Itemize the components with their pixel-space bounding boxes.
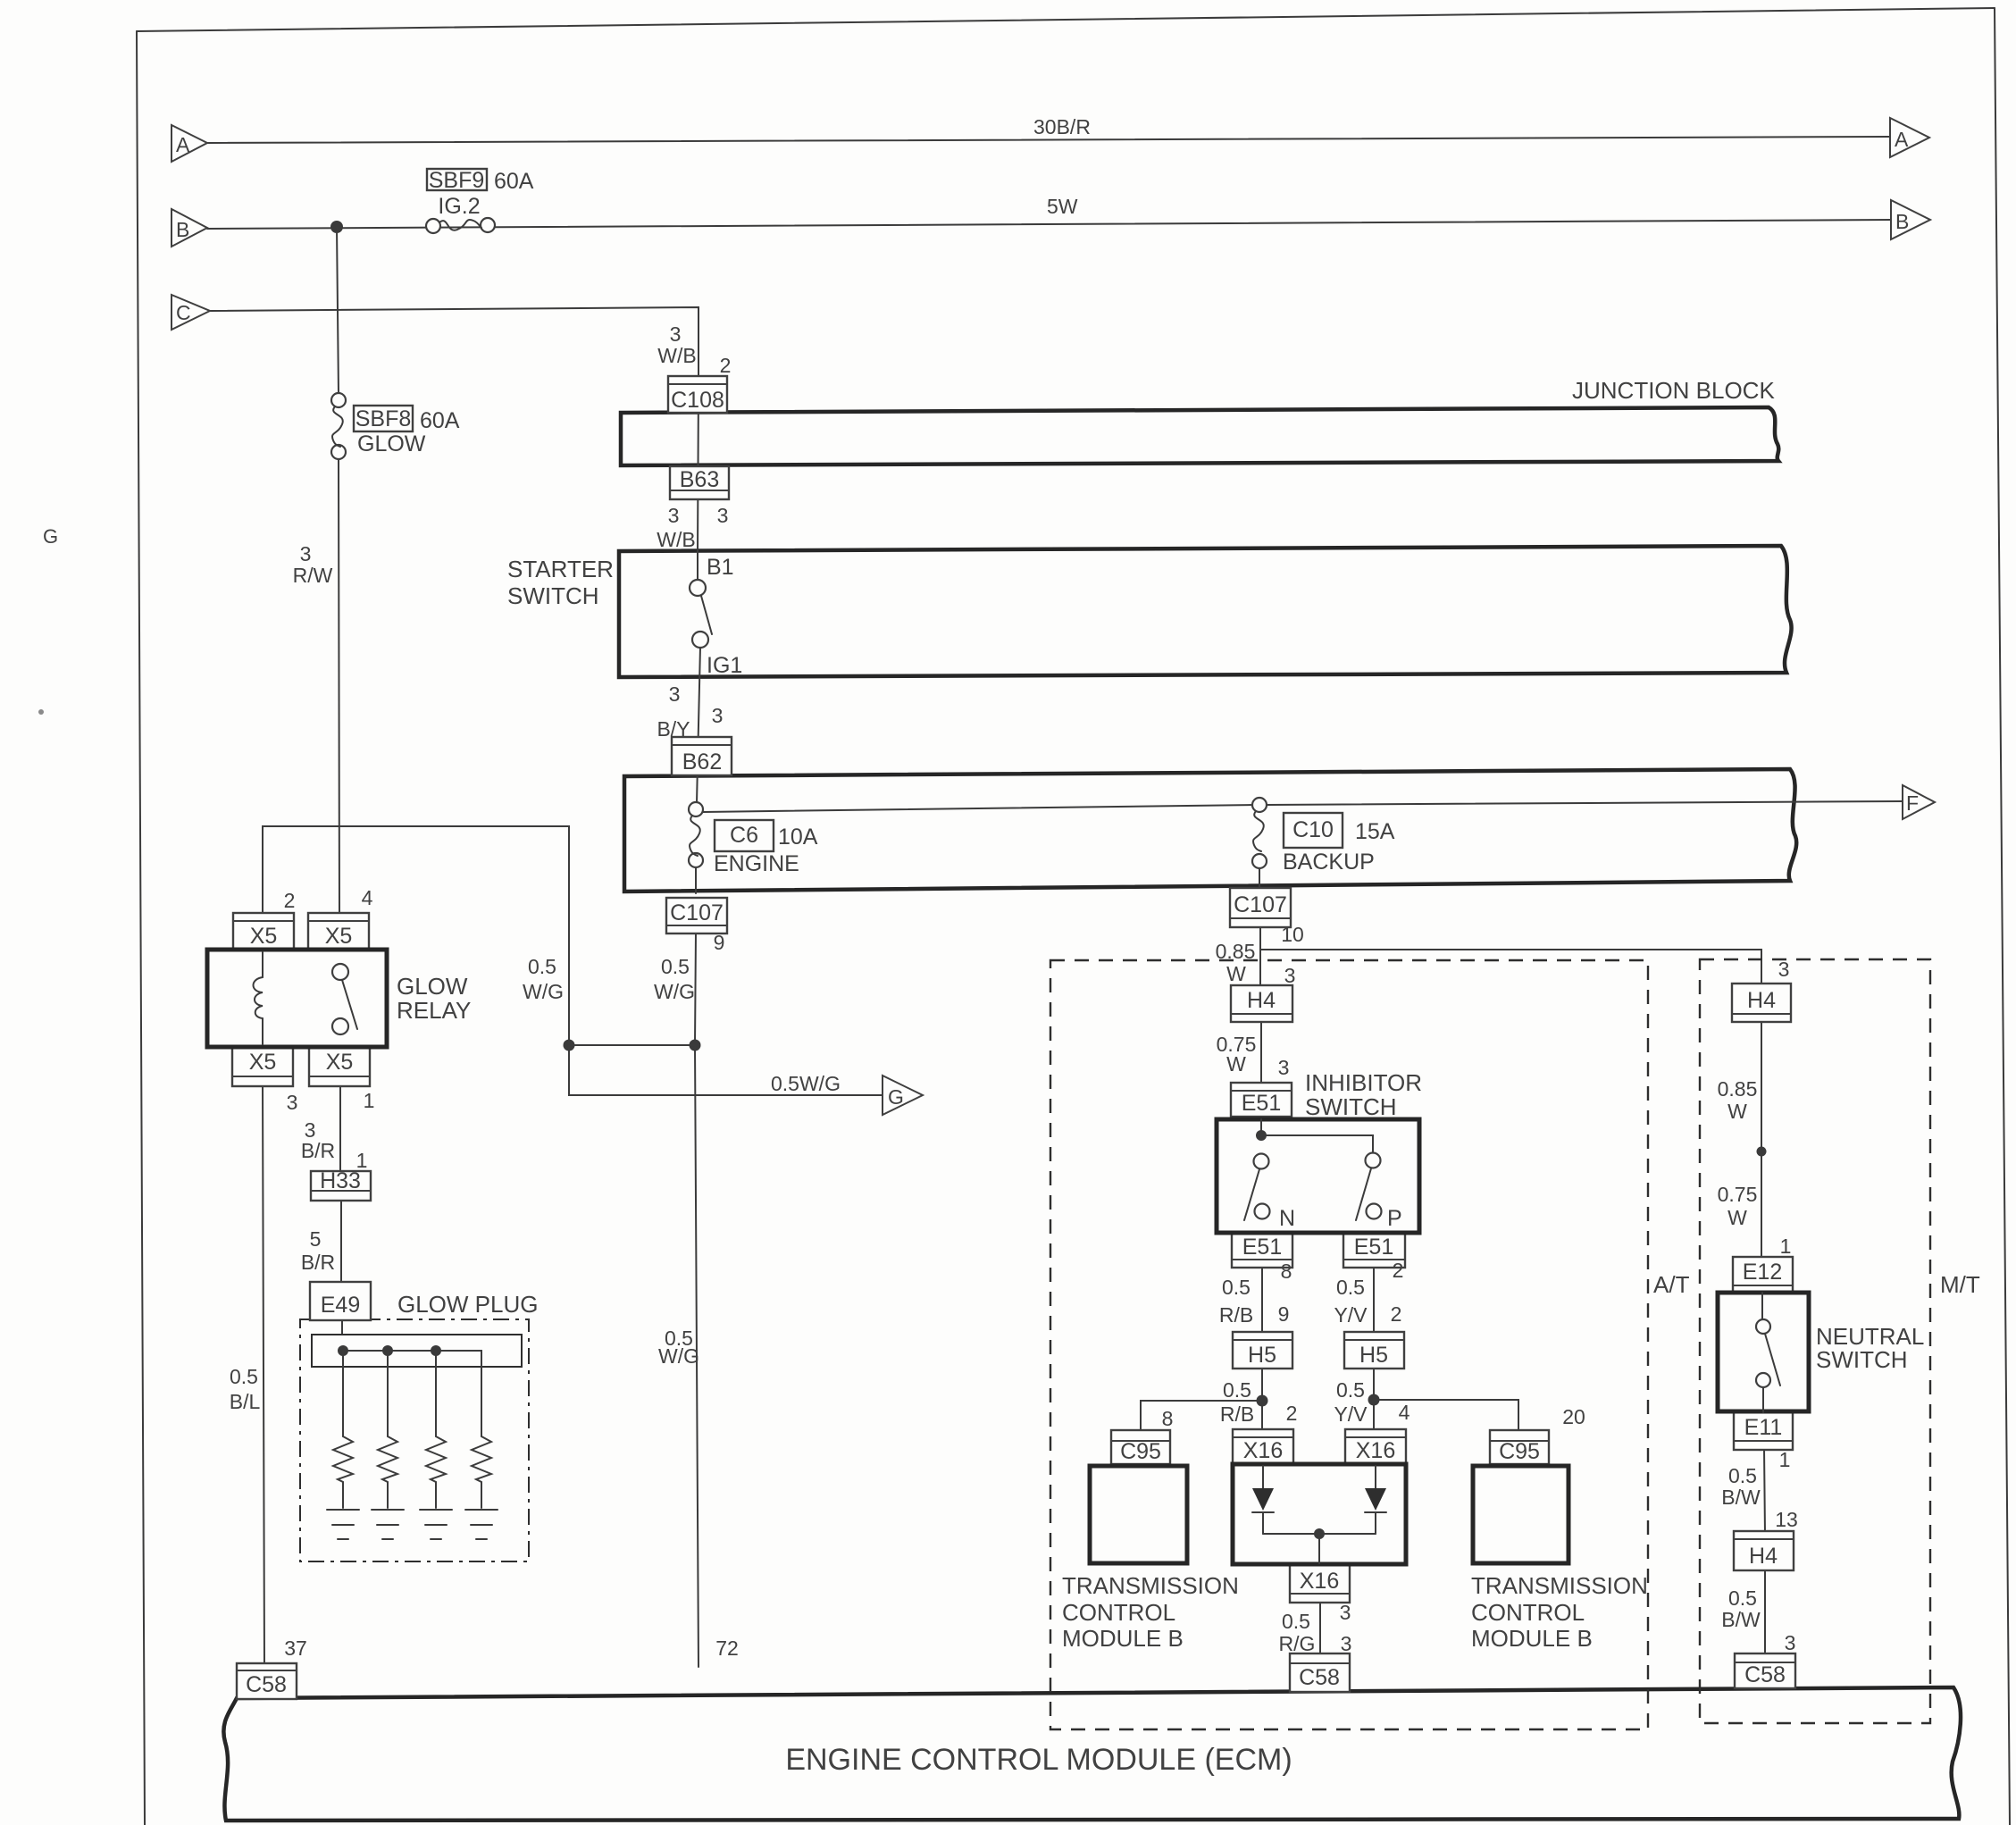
svg-text:W: W <box>1727 1100 1747 1123</box>
svg-text:3: 3 <box>717 504 729 527</box>
svg-text:0.75: 0.75 <box>1718 1183 1758 1206</box>
svg-text:0.5: 0.5 <box>1222 1276 1251 1299</box>
svg-text:13: 13 <box>1775 1508 1798 1531</box>
svg-text:E51: E51 <box>1354 1235 1393 1260</box>
svg-text:B/L: B/L <box>230 1390 261 1413</box>
svg-text:W/B: W/B <box>657 344 696 367</box>
svg-text:1: 1 <box>1780 1235 1792 1258</box>
svg-text:A: A <box>176 133 190 156</box>
svg-text:0.85: 0.85 <box>1718 1077 1758 1101</box>
svg-text:3: 3 <box>669 682 681 706</box>
svg-text:M/T: M/T <box>1940 1271 1980 1298</box>
svg-text:3: 3 <box>1278 1056 1290 1079</box>
svg-text:9: 9 <box>1278 1302 1290 1326</box>
svg-text:2: 2 <box>1391 1302 1402 1326</box>
svg-text:X16: X16 <box>1356 1438 1395 1463</box>
svg-text:B/R: B/R <box>301 1139 335 1162</box>
svg-text:MODULE B: MODULE B <box>1062 1625 1184 1652</box>
svg-text:2: 2 <box>1286 1402 1298 1425</box>
svg-text:RELAY: RELAY <box>397 997 471 1024</box>
svg-text:72: 72 <box>715 1637 739 1660</box>
svg-text:IG.2: IG.2 <box>438 194 480 219</box>
svg-text:H5: H5 <box>1359 1343 1388 1368</box>
svg-text:0.5: 0.5 <box>528 955 556 978</box>
svg-text:G: G <box>888 1085 904 1109</box>
svg-text:0.5: 0.5 <box>1336 1378 1365 1402</box>
svg-text:E11: E11 <box>1744 1415 1783 1440</box>
svg-text:N: N <box>1279 1206 1295 1231</box>
svg-text:B/Y: B/Y <box>657 717 690 741</box>
svg-text:8: 8 <box>1281 1260 1292 1283</box>
svg-text:0.5: 0.5 <box>1728 1464 1757 1487</box>
svg-text:0.5: 0.5 <box>1728 1586 1757 1610</box>
svg-text:0.5: 0.5 <box>1336 1276 1365 1299</box>
svg-text:3: 3 <box>712 704 724 727</box>
svg-text:GLOW PLUG: GLOW PLUG <box>397 1291 538 1318</box>
svg-text:B63: B63 <box>680 467 719 492</box>
svg-text:B/W: B/W <box>1721 1486 1761 1509</box>
svg-text:1: 1 <box>356 1149 368 1172</box>
svg-text:F: F <box>1906 791 1919 815</box>
svg-text:W/G: W/G <box>523 980 564 1003</box>
svg-text:10: 10 <box>1281 923 1304 946</box>
svg-text:B: B <box>176 218 189 241</box>
svg-text:R/B: R/B <box>1220 1402 1254 1426</box>
svg-text:3: 3 <box>287 1091 298 1114</box>
svg-text:R/B: R/B <box>1219 1303 1253 1327</box>
svg-text:Y/V: Y/V <box>1334 1402 1368 1426</box>
svg-text:C107: C107 <box>1234 892 1287 917</box>
svg-text:X16: X16 <box>1243 1438 1283 1463</box>
svg-text:SWITCH: SWITCH <box>507 582 599 609</box>
svg-text:B/R: B/R <box>301 1251 335 1274</box>
svg-text:37: 37 <box>284 1637 307 1660</box>
svg-text:3: 3 <box>668 504 680 527</box>
svg-text:H4: H4 <box>1747 988 1776 1013</box>
svg-text:3: 3 <box>1341 1632 1352 1655</box>
svg-text:W: W <box>1226 962 1246 985</box>
svg-text:C: C <box>176 301 191 324</box>
svg-text:C58: C58 <box>1744 1662 1786 1687</box>
svg-text:C58: C58 <box>1299 1665 1340 1690</box>
svg-text:X5: X5 <box>326 1050 354 1075</box>
svg-text:X16: X16 <box>1300 1569 1339 1594</box>
svg-text:X5: X5 <box>325 924 353 949</box>
svg-text:2: 2 <box>720 354 732 377</box>
svg-text:X5: X5 <box>250 924 278 949</box>
svg-text:C58: C58 <box>246 1672 287 1697</box>
svg-text:H33: H33 <box>320 1168 361 1193</box>
svg-text:GLOW: GLOW <box>397 973 468 1000</box>
svg-text:0.85: 0.85 <box>1216 940 1256 963</box>
svg-text:C10: C10 <box>1292 817 1334 842</box>
svg-text:W/G: W/G <box>654 980 695 1003</box>
svg-text:3: 3 <box>1785 1631 1796 1654</box>
svg-text:R/G: R/G <box>1279 1632 1316 1655</box>
svg-text:ENGINE CONTROL MODULE (ECM): ENGINE CONTROL MODULE (ECM) <box>785 1743 1292 1777</box>
svg-text:W: W <box>1226 1052 1246 1076</box>
svg-text:0.5: 0.5 <box>1282 1610 1310 1633</box>
svg-text:CONTROL: CONTROL <box>1062 1599 1175 1626</box>
svg-text:4: 4 <box>1399 1401 1410 1424</box>
svg-text:E12: E12 <box>1743 1260 1782 1285</box>
svg-text:3: 3 <box>670 322 682 346</box>
svg-text:TRANSMISSION: TRANSMISSION <box>1062 1572 1239 1599</box>
svg-text:0.5: 0.5 <box>230 1365 258 1388</box>
svg-text:1: 1 <box>364 1089 375 1112</box>
svg-text:SBF9: SBF9 <box>429 168 485 193</box>
svg-text:E49: E49 <box>321 1293 360 1318</box>
svg-text:0.5: 0.5 <box>1223 1378 1251 1402</box>
svg-text:P: P <box>1387 1206 1402 1231</box>
svg-text:BACKUP: BACKUP <box>1283 850 1375 875</box>
svg-text:C95: C95 <box>1499 1439 1540 1464</box>
svg-text:A: A <box>1895 128 1909 151</box>
svg-text:0.5: 0.5 <box>661 955 690 978</box>
svg-text:3: 3 <box>1284 964 1296 987</box>
svg-text:0.5W/G: 0.5W/G <box>771 1072 841 1095</box>
svg-text:B/W: B/W <box>1721 1608 1761 1631</box>
svg-text:H4: H4 <box>1247 988 1276 1013</box>
svg-text:15A: 15A <box>1355 819 1395 844</box>
svg-text:E51: E51 <box>1242 1091 1281 1116</box>
svg-text:JUNCTION BLOCK: JUNCTION BLOCK <box>1572 377 1775 404</box>
svg-text:3: 3 <box>300 542 312 565</box>
svg-text:60A: 60A <box>494 169 534 194</box>
svg-text:SWITCH: SWITCH <box>1305 1093 1397 1120</box>
svg-text:H4: H4 <box>1749 1544 1778 1569</box>
svg-text:R/W: R/W <box>293 564 333 587</box>
svg-text:1: 1 <box>1779 1448 1791 1471</box>
svg-text:5: 5 <box>310 1227 322 1251</box>
svg-text:60A: 60A <box>420 408 460 433</box>
svg-text:H5: H5 <box>1248 1343 1276 1368</box>
svg-text:3: 3 <box>1340 1601 1351 1624</box>
svg-text:2: 2 <box>284 889 296 912</box>
svg-text:A/T: A/T <box>1653 1271 1690 1298</box>
svg-text:30B/R: 30B/R <box>1033 115 1091 138</box>
svg-text:C6: C6 <box>730 823 758 848</box>
svg-text:SBF8: SBF8 <box>356 406 412 431</box>
svg-text:SWITCH: SWITCH <box>1816 1346 1908 1373</box>
svg-text:10A: 10A <box>778 825 818 850</box>
svg-text:C107: C107 <box>670 900 724 925</box>
svg-text:C95: C95 <box>1120 1439 1161 1464</box>
svg-text:TRANSMISSION: TRANSMISSION <box>1471 1572 1648 1599</box>
svg-text:IG1: IG1 <box>707 653 742 678</box>
svg-text:2: 2 <box>1393 1259 1404 1282</box>
svg-text:ENGINE: ENGINE <box>714 851 799 876</box>
svg-text:CONTROL: CONTROL <box>1471 1599 1585 1626</box>
svg-text:20: 20 <box>1562 1405 1585 1428</box>
svg-text:MODULE B: MODULE B <box>1471 1625 1593 1652</box>
svg-text:G: G <box>43 525 58 548</box>
svg-text:STARTER: STARTER <box>507 556 614 582</box>
svg-text:B: B <box>1895 210 1909 233</box>
svg-text:4: 4 <box>362 886 373 909</box>
svg-text:B1: B1 <box>707 555 734 580</box>
svg-text:X5: X5 <box>249 1050 277 1075</box>
svg-text:5W: 5W <box>1047 195 1078 218</box>
svg-text:3: 3 <box>1778 958 1790 981</box>
svg-text:E51: E51 <box>1242 1235 1282 1260</box>
svg-text:B62: B62 <box>682 749 722 774</box>
svg-text:C108: C108 <box>671 388 724 413</box>
svg-text:INHIBITOR: INHIBITOR <box>1305 1069 1422 1096</box>
svg-text:Y/V: Y/V <box>1334 1303 1368 1327</box>
svg-text:9: 9 <box>714 931 725 954</box>
svg-text:W/B: W/B <box>657 528 695 551</box>
svg-text:GLOW: GLOW <box>357 431 426 456</box>
svg-text:W/G: W/G <box>658 1344 699 1368</box>
svg-text:8: 8 <box>1162 1407 1174 1430</box>
svg-text:W: W <box>1727 1206 1747 1229</box>
